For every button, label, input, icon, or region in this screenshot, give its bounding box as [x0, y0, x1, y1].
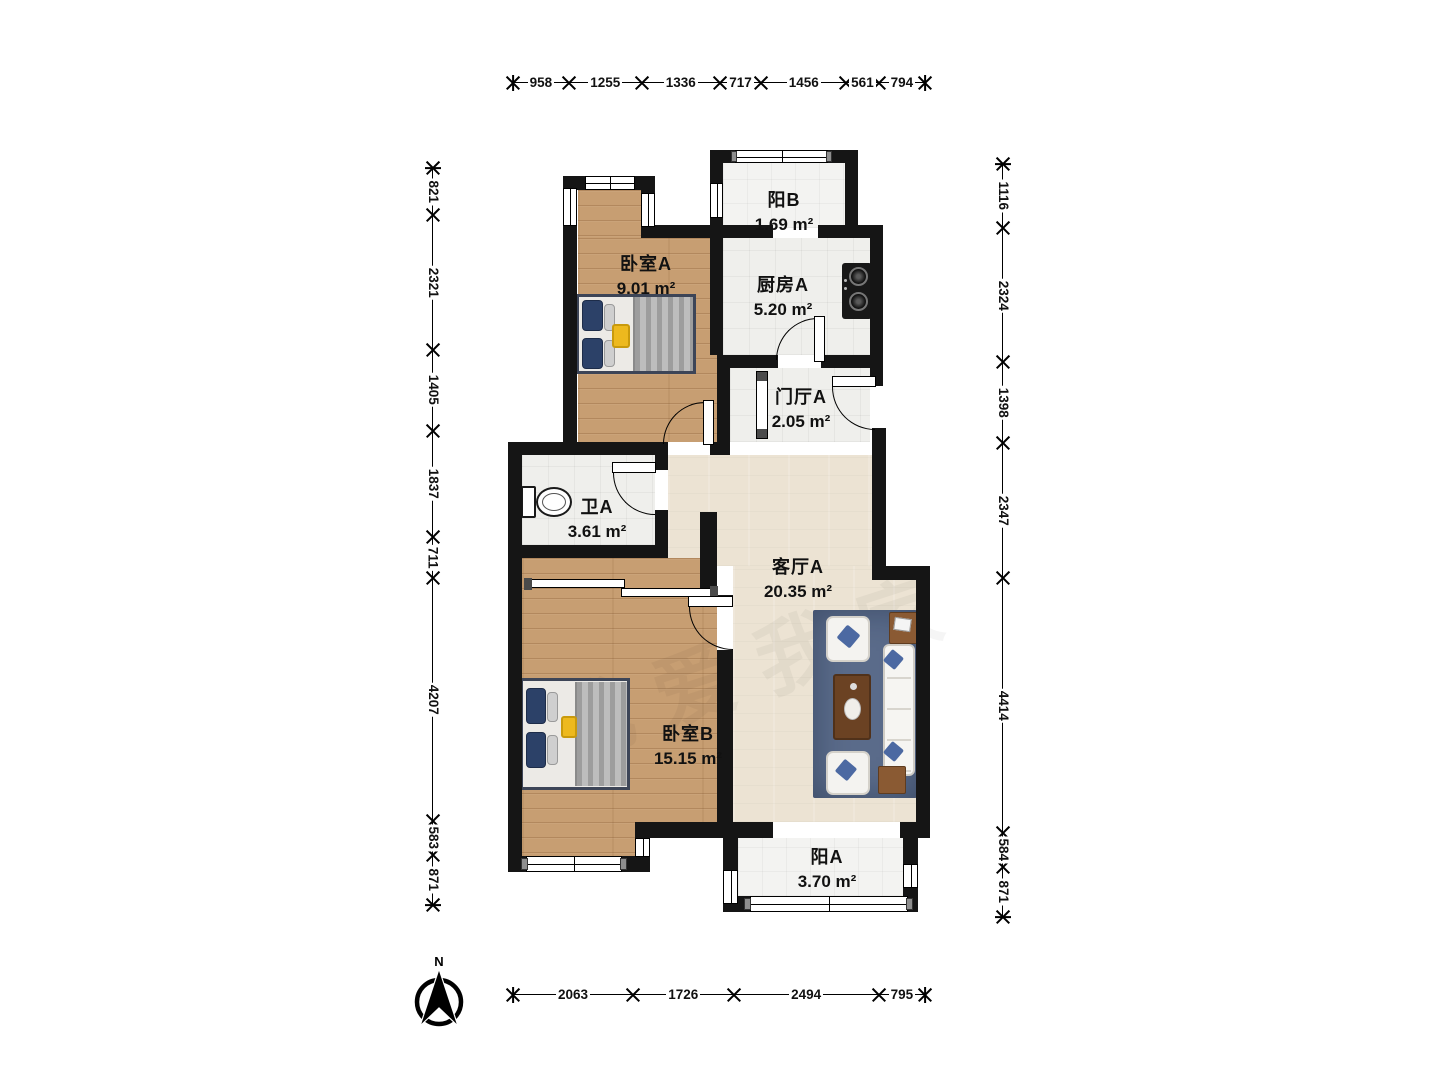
room-label-balcony-a: 阳A 3.70 m² [798, 848, 857, 890]
dimension-value: 1456 [787, 75, 821, 91]
dimension-value: 717 [727, 75, 754, 91]
dimension-value: 1336 [664, 75, 698, 91]
window-cap [906, 898, 913, 910]
dimension-value: 2494 [789, 987, 823, 1003]
window [585, 176, 635, 190]
dimension-chain-top: 958125513367171456561794 [513, 72, 925, 94]
dimension-value: 584 [995, 837, 1011, 864]
dimension-value: 2321 [425, 265, 441, 299]
compass-north-label: N [434, 954, 443, 969]
dimension-segment: 2063 [513, 984, 633, 1006]
wall-segment [508, 442, 667, 455]
dimension-endbar [995, 163, 1011, 165]
foyer-door-frame-cap [757, 372, 767, 381]
wall-segment [508, 442, 522, 870]
floor-bedroom-a [578, 190, 641, 238]
window [526, 856, 622, 872]
dimension-segment: 1336 [642, 72, 720, 94]
dimension-endbar [512, 987, 514, 1003]
dimension-segment: 4414 [992, 578, 1014, 833]
wall-segment [821, 355, 883, 368]
dimension-chain-bottom: 206317262494795 [513, 984, 925, 1006]
book [893, 617, 912, 632]
dimension-segment: 2347 [992, 443, 1014, 578]
bed-duvet [575, 682, 627, 786]
stove-knob [844, 279, 847, 282]
dimension-value: 711 [425, 544, 441, 570]
door-leaf-bedroom-a [703, 400, 714, 445]
dimension-value: 1398 [995, 386, 1011, 420]
dimension-value: 1726 [666, 987, 700, 1003]
room-label-bath-a: 卫A 3.61 m² [568, 498, 627, 540]
bed-pillow [526, 732, 546, 768]
wall-segment [717, 355, 730, 455]
window [641, 193, 655, 227]
dimension-endbar [425, 167, 441, 169]
dimension-value: 2063 [556, 987, 590, 1003]
bed-pillow [526, 688, 546, 724]
floor-plan: 我爱我家 [0, 0, 1440, 1080]
dimension-segment: 871 [992, 867, 1014, 917]
room-label-living-a: 客厅A 20.35 m² [764, 558, 832, 600]
dimension-segment: 561 [846, 72, 879, 94]
dimension-value: 1116 [995, 180, 1011, 213]
room-label-kitchen-a: 厨房A 5.20 m² [754, 276, 813, 318]
bed-pillow [547, 692, 558, 722]
dimension-value: 794 [889, 75, 916, 91]
window [903, 864, 918, 888]
wall-segment [655, 442, 668, 470]
toilet-bowl [536, 487, 572, 517]
table-plate [844, 698, 861, 720]
dimension-chain-right: 11162324139823474414584871 [992, 164, 1014, 917]
dimension-segment: 2324 [992, 228, 1014, 362]
dimension-value: 4414 [995, 689, 1011, 723]
dimension-value: 1255 [588, 75, 622, 91]
bed-duvet [633, 297, 693, 371]
floor-bedroom-b [522, 822, 635, 856]
dimension-value: 1405 [425, 373, 441, 407]
dimension-segment: 2321 [422, 215, 444, 349]
dimension-segment: 1255 [569, 72, 642, 94]
dimension-endbar [425, 904, 441, 906]
window-cap [744, 898, 751, 910]
dimension-value: 2324 [995, 278, 1011, 312]
dimension-segment: 958 [513, 72, 569, 94]
dimension-endbar [995, 916, 1011, 918]
window-cap [826, 151, 832, 162]
dimension-endbar [924, 987, 926, 1003]
window-cap [731, 151, 737, 162]
bed-pillow [582, 300, 603, 331]
wall-segment [870, 225, 883, 368]
toilet-icon [521, 486, 536, 518]
dimension-value: 4207 [425, 682, 441, 716]
wall-segment [916, 566, 930, 838]
dimension-value: 871 [995, 879, 1011, 906]
window [635, 838, 650, 857]
side-table-icon [878, 766, 906, 794]
sliding-door-panel [531, 579, 625, 588]
window [750, 896, 908, 912]
dimension-segment: 1405 [422, 350, 444, 431]
dimension-endbar [924, 75, 926, 91]
door-leaf-entry [832, 376, 876, 387]
window [710, 183, 723, 218]
floor-living-a [668, 455, 872, 566]
room-label-balcony-b: 阳B 1.69 m² [755, 191, 814, 233]
bed-tray [612, 324, 630, 348]
dimension-chain-left: 8212321140518377114207583871 [422, 168, 444, 905]
dimension-segment: 584 [992, 833, 1014, 867]
room-label-bedroom-a: 卧室A 9.01 m² [617, 255, 676, 297]
dimension-value: 583 [425, 825, 441, 852]
door-leaf-bedroom-b [688, 596, 733, 607]
wall-segment [900, 822, 930, 838]
bed-pillow [582, 338, 603, 369]
dimension-segment: 4207 [422, 578, 444, 821]
dimension-value: 1837 [425, 467, 441, 501]
table-dot [850, 683, 857, 690]
wall-segment [710, 238, 723, 355]
dimension-value: 2347 [995, 494, 1011, 528]
window [723, 870, 738, 904]
dimension-value: 871 [425, 867, 441, 894]
wall-segment [818, 225, 845, 238]
compass-needle [420, 969, 458, 1026]
stove-burner [849, 292, 868, 311]
dimension-segment: 2494 [734, 984, 879, 1006]
window [563, 188, 577, 226]
wall-segment [655, 510, 668, 558]
door-leaf-kitchen-a [814, 316, 825, 362]
dimension-value: 821 [425, 178, 441, 205]
dimension-segment: 1398 [992, 362, 1014, 443]
window [735, 150, 828, 163]
dimension-segment: 1456 [761, 72, 846, 94]
window-cap [521, 858, 528, 870]
wall-segment [635, 822, 733, 838]
room-label-foyer-a: 门厅A 2.05 m² [772, 388, 831, 430]
dimension-value: 795 [889, 987, 916, 1003]
dimension-segment: 583 [422, 821, 444, 855]
door-leaf-bath-a [612, 462, 656, 473]
dimension-value: 958 [528, 75, 555, 91]
stove-burner [849, 267, 868, 286]
dimension-segment: 1837 [422, 431, 444, 537]
dimension-segment: 871 [422, 855, 444, 905]
dimension-segment: 1116 [992, 164, 1014, 228]
wall-segment [872, 428, 886, 580]
compass-icon: N [404, 952, 474, 1036]
dimension-value: 561 [849, 75, 876, 91]
bed-tray [561, 716, 577, 738]
room-label-bedroom-b: 卧室B 15.15 m² [654, 725, 722, 767]
stove-knob [844, 287, 847, 290]
dimension-endbar [512, 75, 514, 91]
foyer-door-frame-cap [757, 429, 767, 438]
wall-segment [733, 822, 773, 838]
dimension-segment: 1726 [633, 984, 733, 1006]
bed-pillow [547, 735, 558, 765]
sliding-door-cap [524, 578, 532, 590]
window-cap [620, 858, 627, 870]
wall-segment [508, 545, 668, 558]
